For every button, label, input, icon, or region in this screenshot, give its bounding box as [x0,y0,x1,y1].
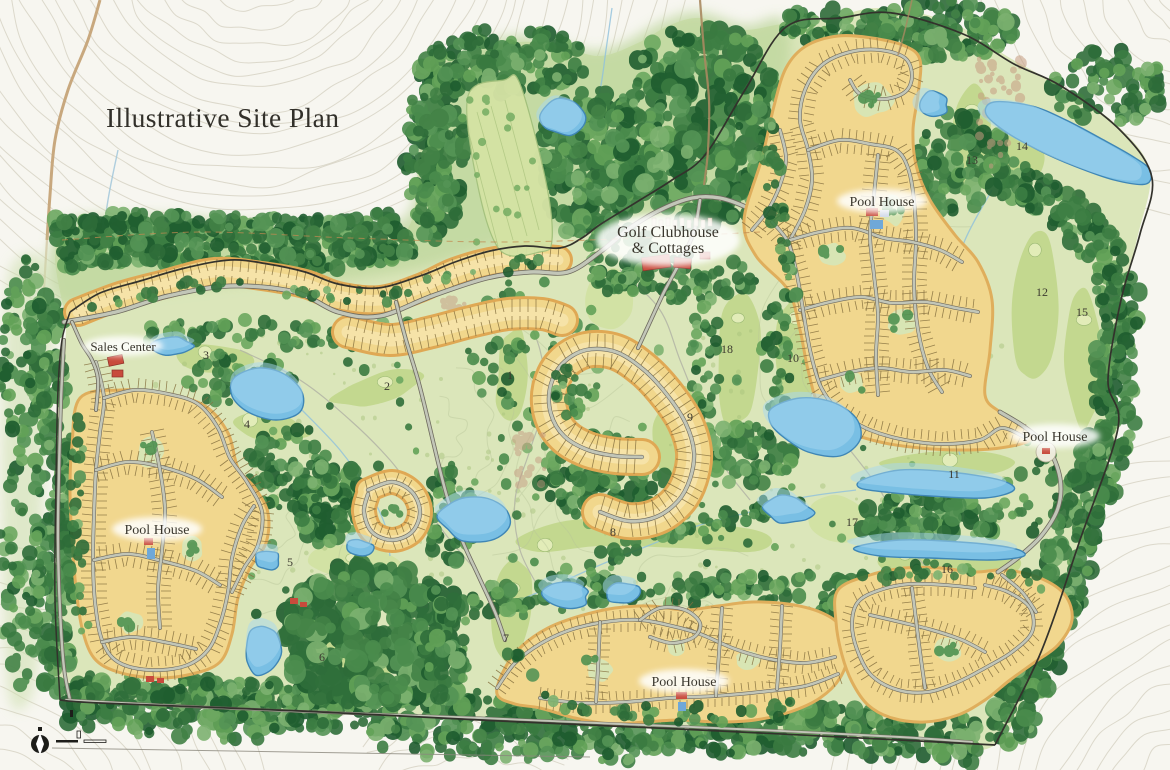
svg-text:& Cottages: & Cottages [632,240,704,257]
svg-text:18: 18 [721,342,733,356]
svg-text:4: 4 [244,417,250,431]
svg-text:Pool House: Pool House [125,523,190,538]
svg-text:14: 14 [1016,139,1028,153]
svg-text:Pool House: Pool House [652,675,717,690]
svg-text:9: 9 [687,410,693,424]
svg-text:Pool House: Pool House [1023,430,1088,445]
svg-text:3: 3 [203,348,209,362]
svg-text:17: 17 [846,515,858,529]
svg-text:13: 13 [966,153,978,167]
svg-text:Sales Center: Sales Center [90,339,156,354]
svg-text:Golf Clubhouse: Golf Clubhouse [617,224,719,241]
svg-text:15: 15 [1076,305,1088,319]
svg-text:6: 6 [319,650,325,664]
svg-text:Pool House: Pool House [850,195,915,210]
svg-text:16: 16 [941,562,953,576]
svg-text:8: 8 [610,525,616,539]
svg-text:12: 12 [1036,285,1048,299]
svg-text:5: 5 [287,555,293,569]
svg-text:10: 10 [787,351,799,365]
svg-text:11: 11 [948,467,960,481]
svg-text:Illustrative Site Plan: Illustrative Site Plan [106,102,339,133]
svg-text:2: 2 [384,379,390,393]
svg-text:1: 1 [507,368,513,382]
svg-text:7: 7 [503,631,509,645]
